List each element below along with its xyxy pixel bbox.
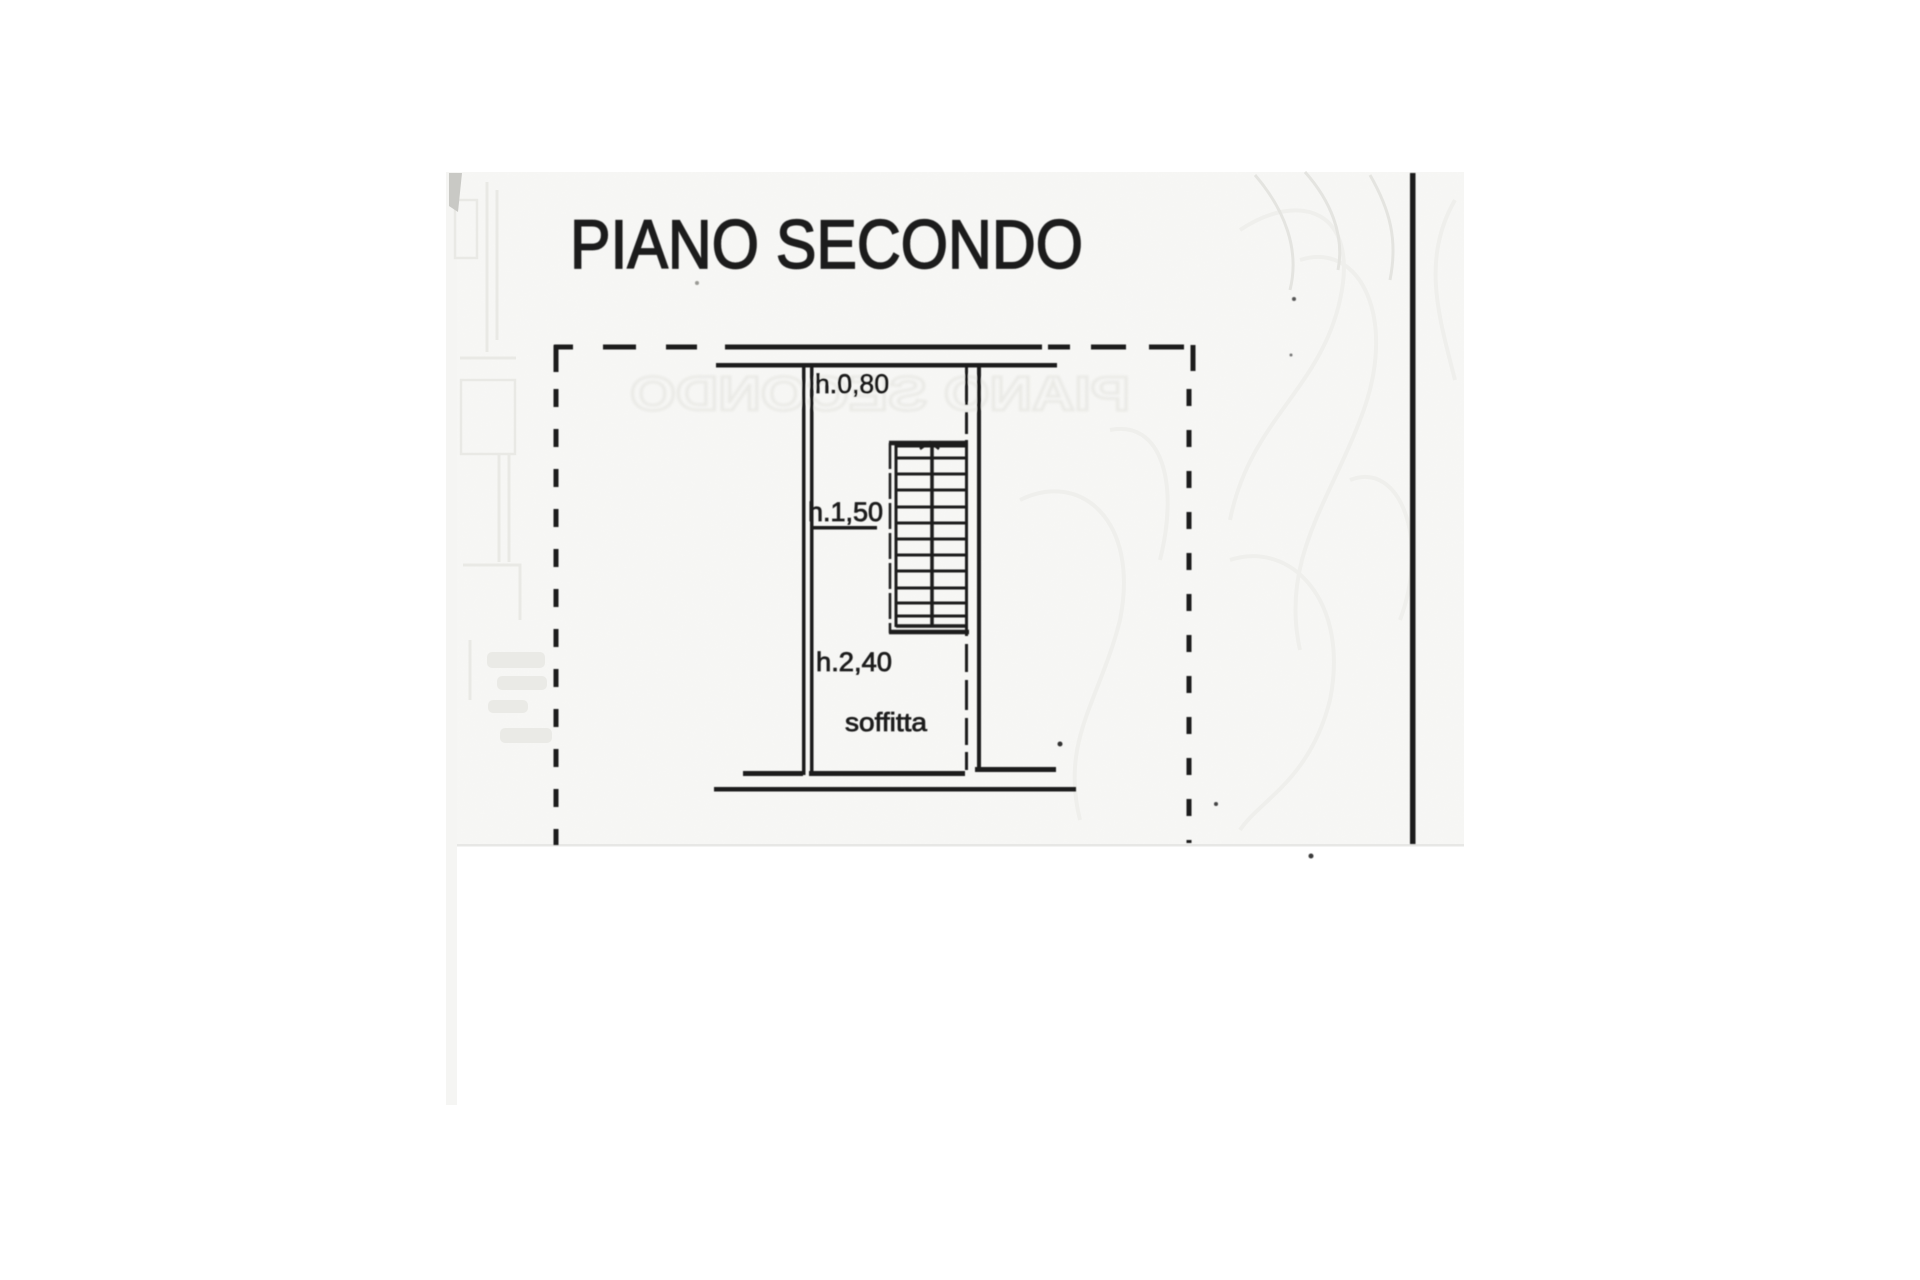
svg-text:PIANO SECONDO: PIANO SECONDO — [570, 206, 1083, 283]
svg-text:h.0,80: h.0,80 — [815, 369, 889, 399]
svg-text:h.1,50: h.1,50 — [808, 497, 883, 527]
svg-text:h.2,40: h.2,40 — [816, 647, 892, 677]
svg-text:soffitta: soffitta — [845, 707, 928, 737]
